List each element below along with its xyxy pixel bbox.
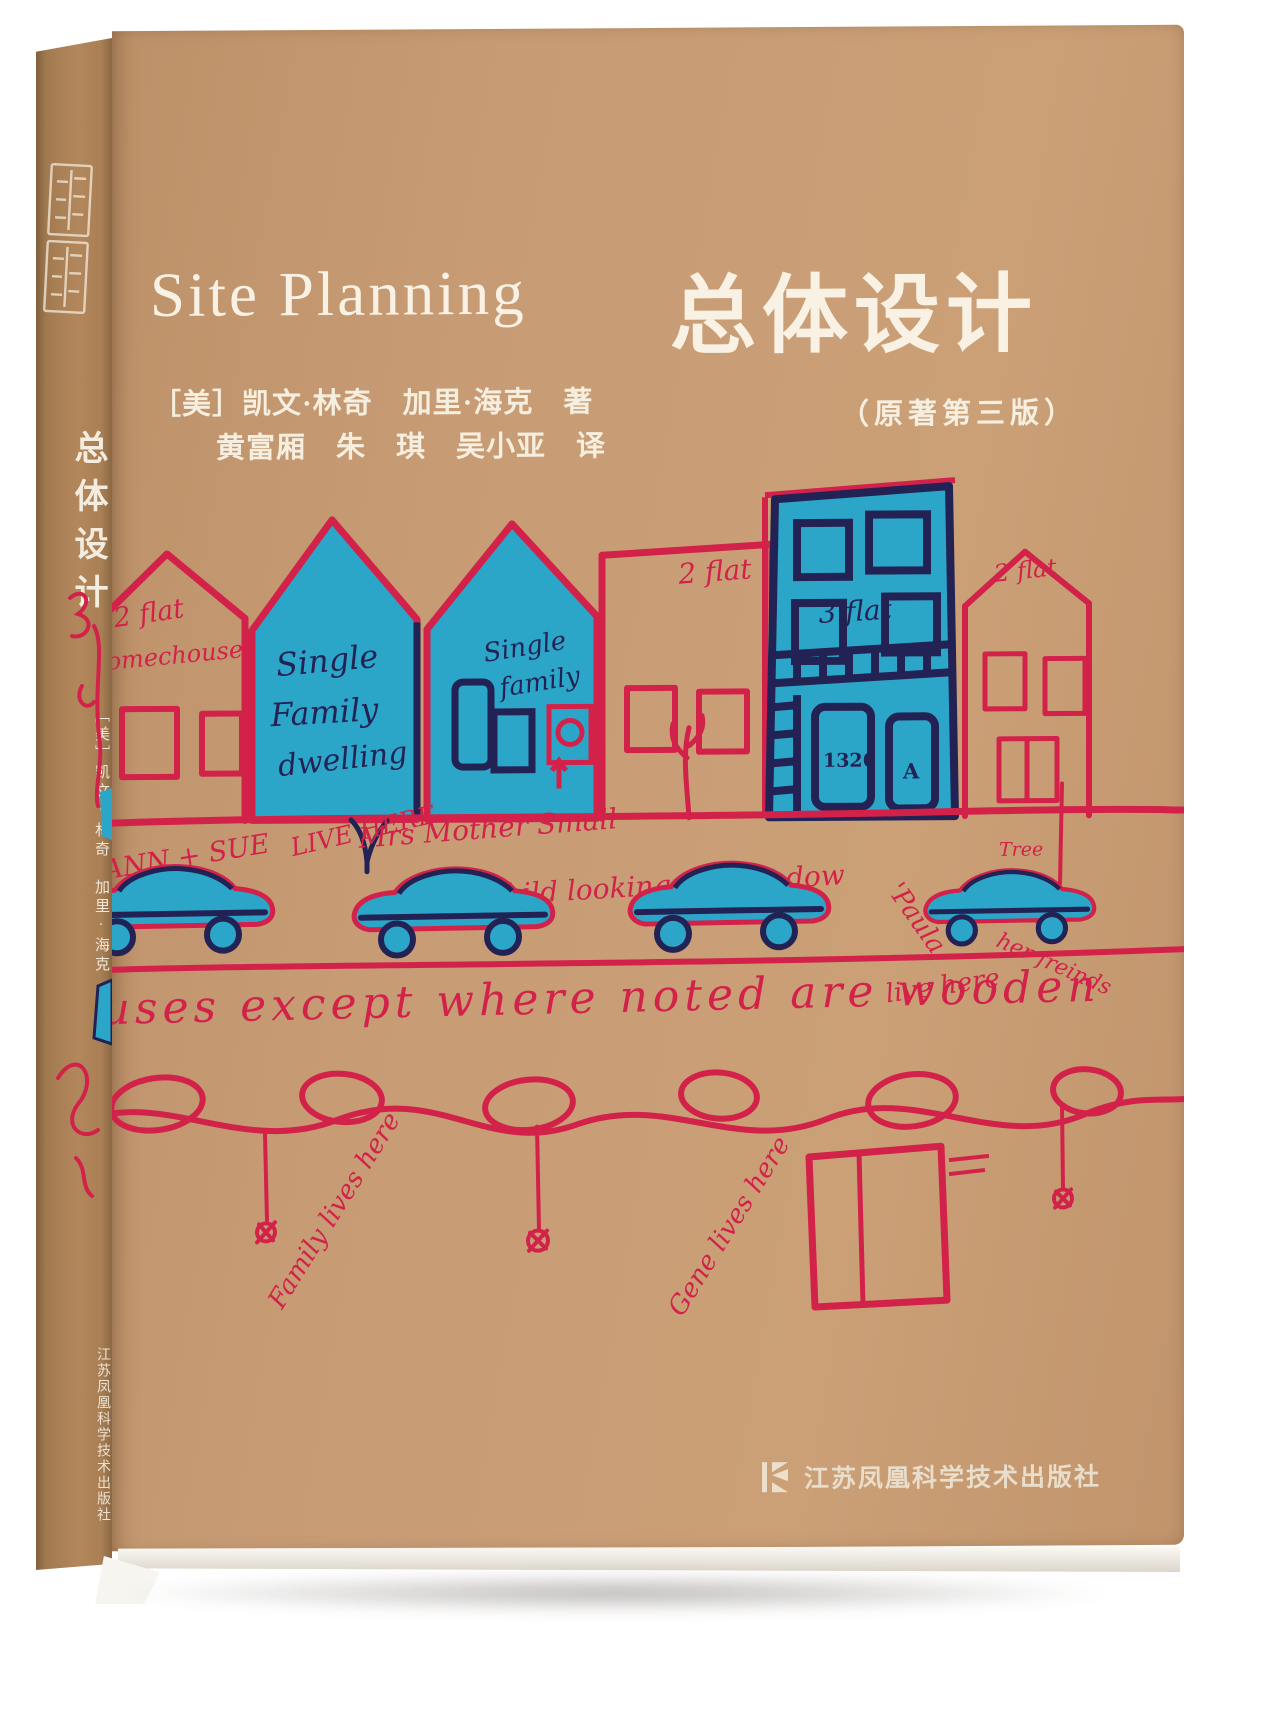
house-2-label2: Family xyxy=(268,690,380,734)
book-front-cover: Site Planning ［美］凯文·林奇 加里·海克 著 黄富厢 朱 琪 吴… xyxy=(112,25,1184,1552)
house-4-label: 2 flat xyxy=(676,552,753,591)
publisher-row: 江苏凤凰科学技术出版社 xyxy=(760,1457,1101,1495)
hw-sentence: houses except where noted are wooden xyxy=(112,961,1101,1037)
title-english: Site Planning xyxy=(150,257,527,332)
book-cover-photo: 总体设计 ［美］凯文·林奇 加里·海克 著 江苏凤凰科学技术出版社 Site P… xyxy=(0,0,1285,1710)
street-drawing: 2 flat Somechouse Single Family dwelling… xyxy=(112,453,1184,1360)
hw-sign-family: Family lives here xyxy=(262,1107,407,1315)
hw-tree-2: Tree xyxy=(999,839,1043,861)
phoenix-logo-icon xyxy=(760,1459,794,1495)
book: 总体设计 ［美］凯文·林奇 加里·海克 著 江苏凤凰科学技术出版社 Site P… xyxy=(36,28,1186,1588)
book-spine: 总体设计 ［美］凯文·林奇 加里·海克 著 江苏凤凰科学技术出版社 xyxy=(36,38,112,1570)
edition-note: （原著第三版） xyxy=(840,389,1078,432)
authors-line: ［美］凯文·林奇 加里·海克 著 xyxy=(152,378,593,423)
house-5-label: 3 flat xyxy=(818,593,894,630)
house-6-label: 2 flat xyxy=(992,553,1059,588)
bush-row-doodle xyxy=(112,1065,1184,1137)
house-5-number: 1326 xyxy=(823,750,876,772)
page-block xyxy=(118,1546,1180,1572)
house-1-label2: Somechouse xyxy=(112,635,244,677)
house-5-blue-building: 3 flat 1326 A xyxy=(765,480,955,817)
book-shadow xyxy=(110,1572,1120,1614)
publisher-name: 江苏凤凰科学技术出版社 xyxy=(804,1457,1101,1495)
house-6-red xyxy=(965,551,1089,816)
tree-doodle-2 xyxy=(1060,783,1062,883)
sign-frame-doodle xyxy=(809,1146,989,1307)
hw-sign-gene: Gene lives here xyxy=(662,1131,796,1321)
spine-illustration-bleed xyxy=(36,38,112,1570)
title-chinese: 总体设计 xyxy=(670,244,1038,371)
car-1 xyxy=(112,866,273,954)
house-5-letter: A xyxy=(902,758,920,783)
